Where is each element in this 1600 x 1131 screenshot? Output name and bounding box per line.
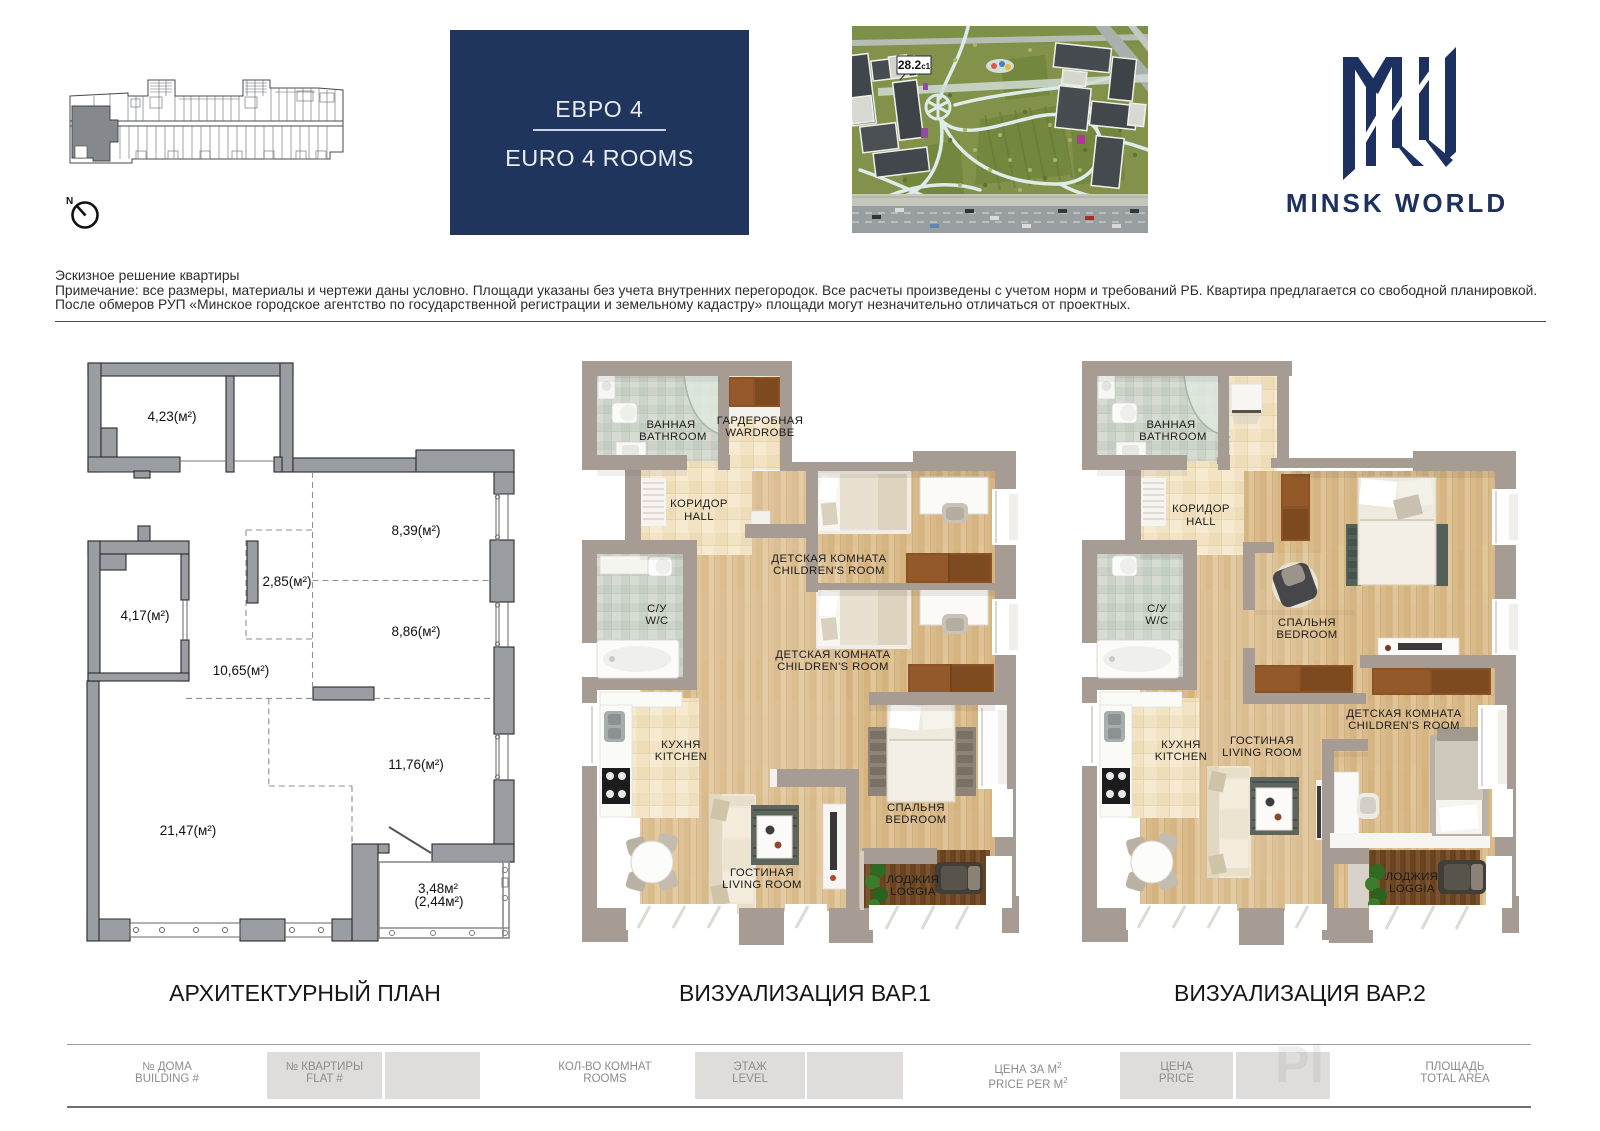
svg-text:ВАННАЯ: ВАННАЯ: [646, 419, 695, 431]
svg-text:11,76(м²): 11,76(м²): [388, 757, 444, 772]
svg-text:WARDROBE: WARDROBE: [725, 427, 794, 439]
svg-text:CHILDREN'S ROOM: CHILDREN'S ROOM: [1348, 720, 1460, 732]
svg-text:KITCHEN: KITCHEN: [1155, 751, 1207, 763]
svg-text:KITCHEN: KITCHEN: [655, 751, 707, 763]
svg-text:HALL: HALL: [684, 511, 714, 523]
svg-text:LIVING ROOM: LIVING ROOM: [722, 879, 802, 891]
svg-text:LOGGIA: LOGGIA: [1389, 883, 1435, 895]
svg-text:BATHROOM: BATHROOM: [639, 431, 707, 443]
svg-text:CHILDREN'S ROOM: CHILDREN'S ROOM: [773, 565, 885, 577]
svg-text:LOGGIA: LOGGIA: [890, 886, 936, 898]
svg-text:W/C: W/C: [645, 615, 668, 627]
svg-text:ДЕТСКАЯ КОМНАТА: ДЕТСКАЯ КОМНАТА: [1346, 708, 1461, 720]
svg-text:ГАРДЕРОБНАЯ: ГАРДЕРОБНАЯ: [717, 415, 804, 427]
svg-text:СПАЛЬНЯ: СПАЛЬНЯ: [1278, 617, 1336, 629]
svg-text:ДЕТСКАЯ КОМНАТА: ДЕТСКАЯ КОМНАТА: [771, 553, 886, 565]
svg-text:КУХНЯ: КУХНЯ: [1161, 739, 1201, 751]
svg-text:21,47(м²): 21,47(м²): [160, 823, 217, 838]
svg-text:КОРИДОР: КОРИДОР: [670, 498, 728, 510]
svg-text:ЛОДЖИЯ: ЛОДЖИЯ: [1386, 871, 1439, 883]
svg-text:ВАННАЯ: ВАННАЯ: [1146, 419, 1195, 431]
svg-text:10,65(м²): 10,65(м²): [213, 663, 270, 678]
svg-text:2,85(м²): 2,85(м²): [262, 574, 311, 589]
svg-text:4,23(м²): 4,23(м²): [147, 409, 196, 424]
svg-text:КУХНЯ: КУХНЯ: [661, 739, 701, 751]
svg-text:CHILDREN'S ROOM: CHILDREN'S ROOM: [777, 661, 889, 673]
svg-text:MINSK WORLD: MINSK WORLD: [1286, 188, 1508, 218]
svg-text:С/У: С/У: [1147, 603, 1167, 615]
svg-text:ДЕТСКАЯ КОМНАТА: ДЕТСКАЯ КОМНАТА: [775, 649, 890, 661]
svg-text:LIVING ROOM: LIVING ROOM: [1222, 747, 1302, 759]
svg-text:N: N: [66, 196, 73, 207]
svg-text:(2,44м²): (2,44м²): [414, 894, 463, 909]
svg-text:ГОСТИНАЯ: ГОСТИНАЯ: [1230, 735, 1294, 747]
svg-text:С/У: С/У: [647, 603, 667, 615]
svg-text:HALL: HALL: [1186, 516, 1216, 528]
svg-text:W/C: W/C: [1145, 615, 1168, 627]
svg-text:BEDROOM: BEDROOM: [1276, 629, 1337, 641]
svg-text:ЛОДЖИЯ: ЛОДЖИЯ: [887, 874, 940, 886]
svg-text:BATHROOM: BATHROOM: [1139, 431, 1207, 443]
svg-text:8,39(м²): 8,39(м²): [391, 523, 440, 538]
svg-text:КОРИДОР: КОРИДОР: [1172, 503, 1230, 515]
svg-text:4,17(м²): 4,17(м²): [120, 608, 169, 623]
svg-text:BEDROOM: BEDROOM: [885, 814, 946, 826]
svg-text:ГОСТИНАЯ: ГОСТИНАЯ: [730, 867, 794, 879]
svg-text:СПАЛЬНЯ: СПАЛЬНЯ: [887, 802, 945, 814]
svg-text:8,86(м²): 8,86(м²): [391, 624, 440, 639]
